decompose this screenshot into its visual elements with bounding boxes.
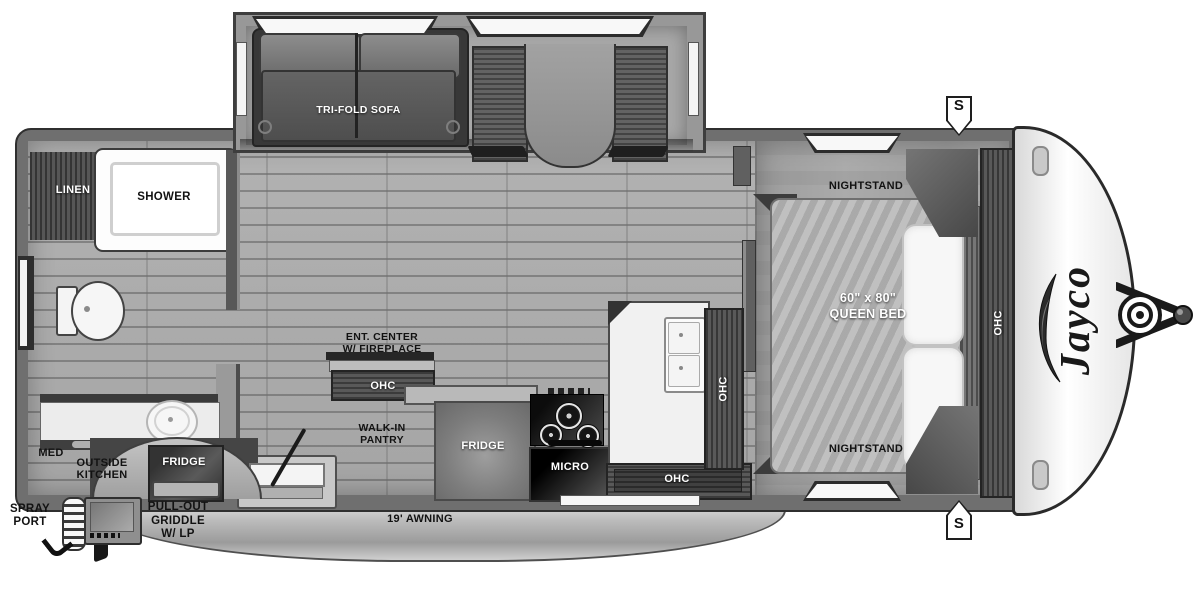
fridge-label: FRIDGE	[436, 440, 530, 452]
jayco-logo: Jayco	[1044, 232, 1108, 408]
micro-label: MICRO	[531, 461, 609, 473]
microwave	[529, 447, 615, 502]
rear-window	[20, 260, 27, 346]
kitchen-window	[560, 495, 700, 506]
dinette-shadow-left	[467, 146, 528, 157]
pantry-label: WALK-IN PANTRY	[318, 422, 446, 446]
toilet-flush-button	[84, 306, 90, 312]
slideout-window-right	[470, 19, 650, 34]
vanity-backsplash	[40, 394, 218, 402]
sofa-leg-right	[446, 120, 460, 134]
griddle-burner-dots	[90, 533, 120, 538]
ent-center-label: ENT. CENTER W/ FIREPLACE	[318, 331, 446, 355]
sink-faucet-1	[679, 333, 683, 337]
ohc-sink-label: OHC	[718, 376, 730, 401]
slideout-side-window-right	[688, 42, 699, 116]
speaker-bottom-label: S	[946, 518, 972, 530]
toilet-bowl	[71, 281, 125, 341]
ohc-sink-cabinet: OHC	[704, 308, 744, 470]
bath-wall-upper	[226, 150, 240, 310]
awning-label: 19' AWNING	[355, 513, 485, 525]
sofa-seam	[355, 33, 358, 138]
dinette-bench-right	[612, 46, 668, 162]
griddle-surface	[90, 502, 134, 532]
queen-bed-label: 60" x 80" QUEEN BED	[792, 290, 944, 322]
cooktop-knobs	[548, 388, 590, 394]
ohc-bed-label: OHC	[993, 310, 1005, 335]
ent-ohc-label: OHC	[370, 380, 395, 392]
nightstand-top-label: NIGHTSTAND	[808, 180, 924, 192]
cooktop-handle	[548, 440, 602, 446]
bedroom-window-bottom	[806, 484, 898, 498]
shower-label: SHOWER	[104, 191, 224, 203]
ohc-lower-label: OHC	[640, 473, 714, 485]
hitch-assembly	[1116, 280, 1194, 350]
griddle-label: PULL-OUT GRIDDLE W/ LP	[134, 501, 222, 542]
dinette-shadow-right	[607, 146, 668, 157]
bed-pillow-top	[902, 224, 964, 346]
divider-wall	[742, 240, 756, 372]
sink-faucet-2	[679, 366, 683, 370]
rv-floorplan: LINEN SHOWER MED OHC ENT. CENTER W/ FIRE…	[0, 0, 1200, 600]
cap-vent-bottom	[1032, 460, 1049, 490]
sofa-leg-left	[258, 120, 272, 134]
dinette-table	[524, 44, 616, 168]
spray-port-label: SPRAY PORT	[0, 503, 60, 529]
entry-step-tread	[249, 463, 325, 487]
vanity-drain	[168, 417, 173, 422]
outside-fridge-tray	[152, 481, 220, 498]
jayco-logo-text: Jayco	[1052, 265, 1100, 375]
divider-wall-stub	[733, 146, 751, 186]
dinette-bench-left	[472, 46, 528, 162]
nightstand-bottom-label: NIGHTSTAND	[808, 443, 924, 455]
sink-basin-2	[668, 355, 700, 387]
outside-kitchen-label: OUTSIDE KITCHEN	[56, 457, 148, 481]
bedroom-window-top	[806, 136, 898, 150]
burner-large	[556, 403, 582, 429]
slideout-side-window-left	[236, 42, 247, 116]
slideout-window-left	[256, 19, 434, 34]
sink-basin-1	[668, 322, 700, 354]
outside-fridge-label: FRIDGE	[150, 456, 218, 468]
speaker-top-label: S	[946, 100, 972, 112]
sofa-label: TRI-FOLD SOFA	[256, 104, 461, 116]
linen-label: LINEN	[34, 184, 112, 196]
cap-vent-top	[1032, 146, 1049, 176]
